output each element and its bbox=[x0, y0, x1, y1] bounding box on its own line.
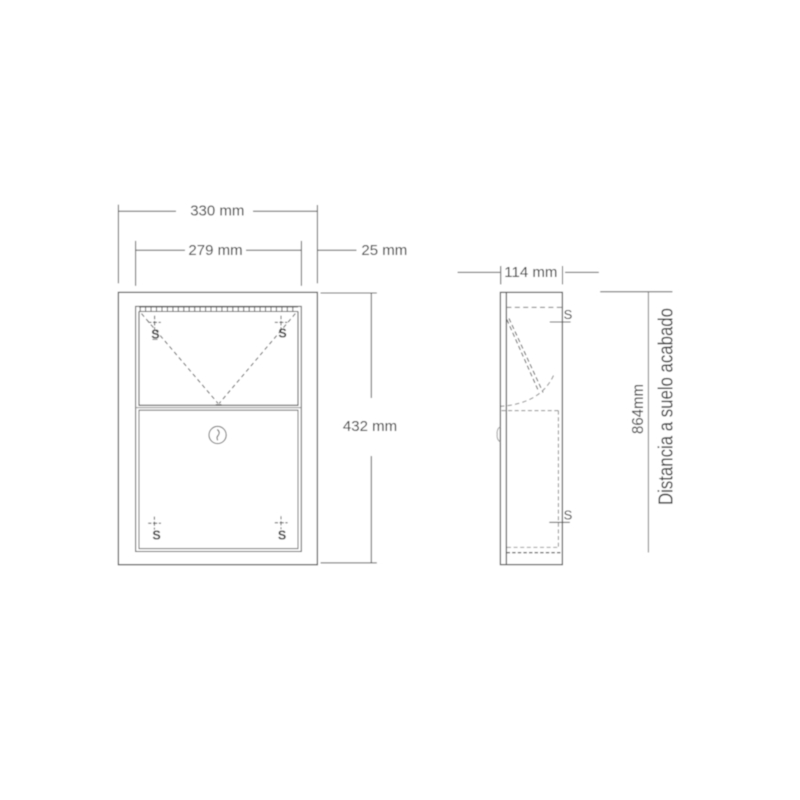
svg-text:432 mm: 432 mm bbox=[343, 418, 397, 435]
svg-text:S: S bbox=[278, 528, 286, 542]
svg-text:279 mm: 279 mm bbox=[188, 242, 242, 259]
svg-text:330 mm: 330 mm bbox=[190, 202, 244, 219]
svg-text:S: S bbox=[564, 508, 573, 523]
svg-text:S: S bbox=[278, 327, 286, 341]
svg-text:864mm: 864mm bbox=[630, 384, 647, 434]
svg-text:S: S bbox=[564, 307, 573, 322]
svg-text:S: S bbox=[152, 529, 160, 543]
svg-text:Distancia a suelo acabado: Distancia a suelo acabado bbox=[655, 308, 677, 505]
svg-text:25 mm: 25 mm bbox=[361, 242, 407, 259]
svg-text:114 mm: 114 mm bbox=[504, 264, 557, 281]
